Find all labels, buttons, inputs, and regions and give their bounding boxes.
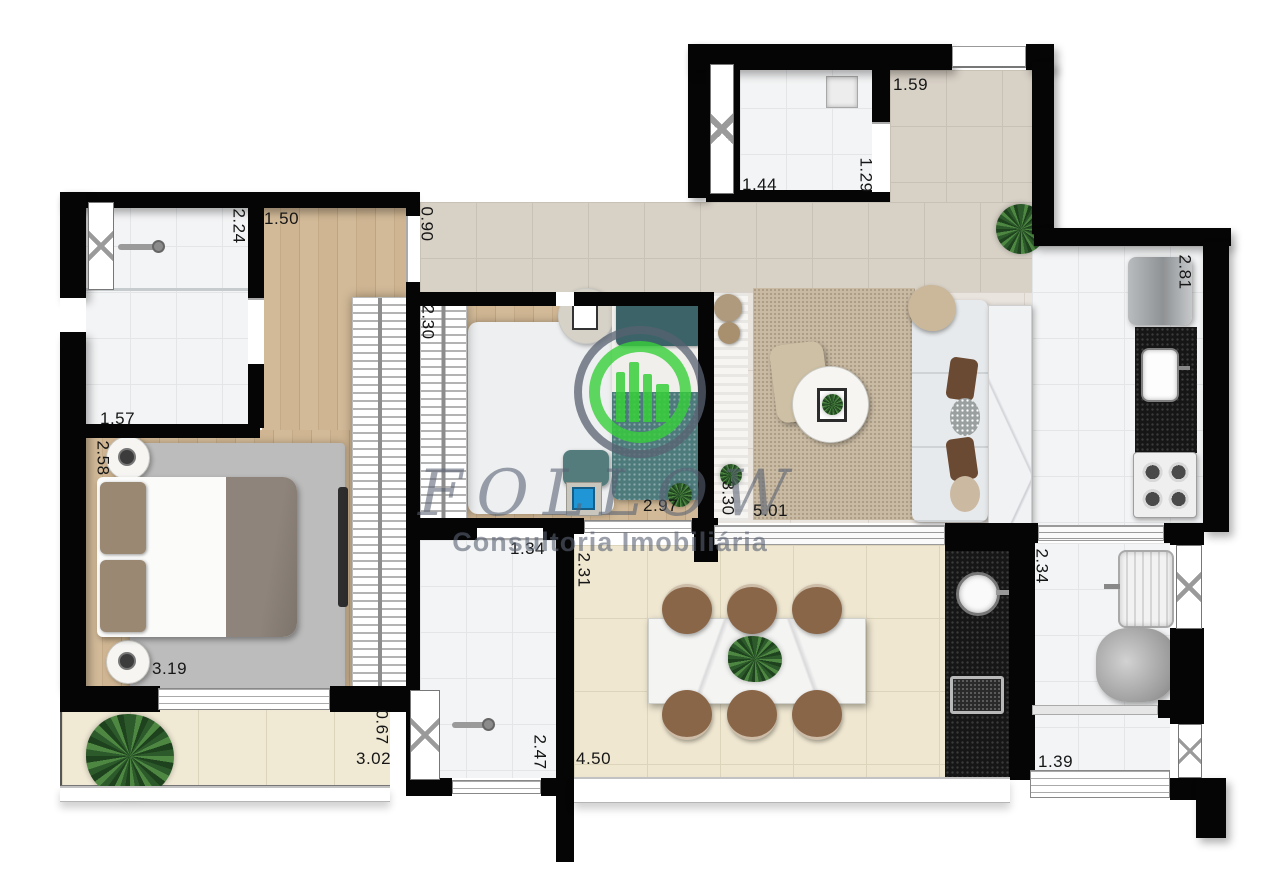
- washing-machine: [1096, 628, 1176, 702]
- dining-chair-6: [792, 690, 842, 740]
- laundry-tub: [1118, 550, 1174, 628]
- gourmet-faucet-icon: [996, 590, 1010, 595]
- wall: [574, 292, 712, 306]
- bath2-lower-window: [452, 780, 541, 794]
- bedroom2-door-opening: [556, 292, 574, 306]
- bedroom2-desk-chair: [563, 450, 609, 486]
- gourmet-sink: [956, 572, 1000, 616]
- laundry-side-window-2: [1178, 724, 1202, 778]
- dim-bath2-width: 1.34: [510, 540, 545, 557]
- basket-2: [718, 322, 740, 344]
- wall: [945, 523, 1011, 551]
- dining-table-leaf-centerpiece: [728, 636, 782, 682]
- nightstand-bottom-lamp-icon: [118, 652, 136, 670]
- living-sliding-door: [714, 525, 945, 545]
- hall-corridor-floor: [420, 202, 1032, 292]
- dim-kitchen-depth: 2.81: [1177, 254, 1194, 289]
- dining-chair-1: [662, 584, 712, 634]
- wall: [1009, 523, 1035, 780]
- wall: [1034, 228, 1231, 246]
- laundry-side-window-1: [1176, 545, 1202, 629]
- dim-balcony-depth: 0.67: [374, 709, 391, 744]
- wall: [406, 778, 452, 796]
- wall: [556, 528, 574, 862]
- wall: [1032, 62, 1054, 234]
- floor-plan: 1.50 2.24 1.57 2.58 3.19 0.90 2.30 2.97 …: [0, 0, 1280, 883]
- bath2-shower-head-icon: [482, 718, 495, 731]
- wall: [60, 192, 86, 298]
- dim-gourmet-width: 4.50: [576, 750, 611, 767]
- dim-living-width: 5.01: [753, 502, 788, 519]
- barbecue-grill: [950, 676, 1004, 714]
- dim-gourmet-depth: 2.31: [576, 552, 593, 587]
- master-bedroom-window: [158, 688, 330, 710]
- sofa-pillow-pattern: [950, 398, 980, 436]
- gourmet-terrace-railing: [574, 777, 1010, 803]
- dim-entry-hall-width: 1.59: [893, 76, 928, 93]
- bed-blanket: [226, 477, 297, 637]
- laundry-window: [1030, 770, 1170, 798]
- laundry-faucet-icon: [1104, 584, 1120, 589]
- bath2-window: [410, 690, 440, 780]
- wall: [415, 528, 477, 540]
- wall: [1196, 778, 1226, 838]
- kitchen-faucet-icon: [1178, 366, 1190, 370]
- entry-door: [952, 46, 1026, 68]
- lavabo-window: [710, 64, 734, 194]
- master-wardrobe: [352, 297, 408, 687]
- dim-laundry-depth: 2.34: [1034, 548, 1051, 583]
- kitchen-sink: [1141, 348, 1179, 402]
- wall: [60, 332, 86, 688]
- dim-suite-width: 3.19: [152, 660, 187, 677]
- wall: [330, 686, 420, 712]
- dim-lavabo-depth: 1.29: [858, 157, 875, 192]
- lavabo-sink-basin: [826, 76, 858, 108]
- dim-living-opening-depth: 3.30: [720, 480, 737, 515]
- suite-bath-window: [88, 202, 114, 290]
- balcony-railing: [60, 786, 390, 802]
- basket-1: [714, 294, 742, 322]
- bedroom2-pillows: [616, 300, 702, 346]
- sofa-pillow-jute: [950, 476, 980, 512]
- dining-chair-2: [727, 584, 777, 634]
- dim-bedroom2-wardrobe-depth: 2.30: [420, 304, 437, 339]
- wall: [60, 686, 160, 712]
- kitchen-island: [988, 305, 1032, 525]
- wall: [541, 778, 573, 796]
- laundry-sliding-door: [1038, 525, 1164, 541]
- wall: [872, 62, 890, 122]
- sofa-pillow-brown-1: [945, 356, 979, 401]
- tv-console: [338, 487, 348, 607]
- wall: [1170, 628, 1204, 724]
- laundry-glass-partition: [1032, 705, 1158, 715]
- dim-closet-door-width: 0.90: [419, 206, 436, 241]
- suite-bath-door-opening: [248, 298, 264, 364]
- bedroom2-laptop: [572, 487, 595, 510]
- dim-bedroom2-width: 2.97: [643, 497, 678, 514]
- dim-suite-depth: 2.58: [95, 440, 112, 475]
- bed-pillow-1: [100, 482, 146, 554]
- dim-laundry-width: 1.39: [1038, 753, 1073, 770]
- shower-head-icon: [152, 240, 165, 253]
- dim-bath2-depth: 2.47: [532, 734, 549, 769]
- wall: [1170, 535, 1204, 545]
- wall: [543, 528, 557, 540]
- dim-suite-bath-depth: 2.24: [231, 208, 248, 243]
- wall: [1030, 523, 1038, 543]
- wall: [248, 364, 264, 428]
- nightstand-top-lamp-icon: [118, 448, 136, 466]
- dining-chair-4: [662, 690, 712, 740]
- dim-balcony-width: 3.02: [356, 750, 391, 767]
- dining-chair-3: [792, 584, 842, 634]
- wall: [1203, 242, 1229, 532]
- dining-chair-5: [727, 690, 777, 740]
- dim-closet-width: 1.50: [264, 210, 299, 227]
- wall: [698, 292, 714, 534]
- dim-lavabo-width: 1.44: [742, 176, 777, 193]
- dim-suite-bath-width: 1.57: [100, 410, 135, 427]
- bedroom2-window: [584, 520, 692, 533]
- sofa-pillow-brown-2: [945, 436, 979, 481]
- bed-pillow-2: [100, 560, 146, 632]
- cooktop-stove: [1133, 452, 1197, 518]
- wall: [248, 198, 264, 298]
- bedroom2-blanket: [612, 392, 706, 500]
- coffee-table-plant: [822, 394, 843, 415]
- left-wall-vent-opening: [60, 298, 86, 332]
